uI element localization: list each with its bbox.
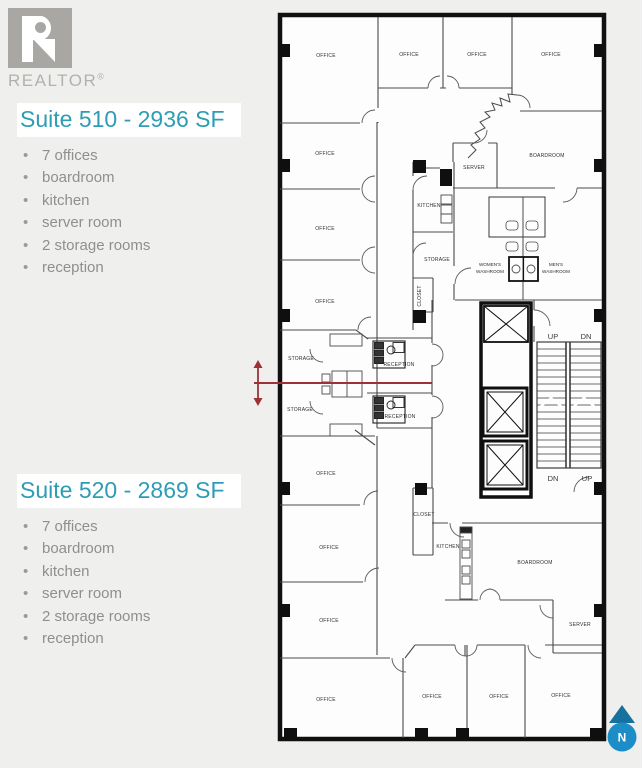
- room-label: SERVER: [463, 165, 485, 171]
- womens-washroom-label: WASHROOM: [476, 269, 504, 274]
- room-label: STORAGE: [287, 407, 313, 413]
- suite-520-panel: Suite 520 - 2869 SF 7 offices boardroom …: [17, 474, 257, 650]
- feature-item: 7 offices: [23, 516, 257, 538]
- info-sidebar: REALTOR® Suite 510 - 2936 SF 7 offices b…: [0, 0, 266, 768]
- realtor-logo: REALTOR®: [8, 8, 118, 91]
- feature-item: boardroom: [23, 167, 257, 189]
- room-label: CLOSET: [417, 285, 423, 306]
- room-label: OFFICE: [551, 693, 571, 699]
- north-triangle-icon: [609, 705, 635, 723]
- room-label: OFFICE: [422, 694, 442, 700]
- room-label: OFFICE: [489, 694, 509, 700]
- room-label: OFFICE: [319, 618, 339, 624]
- feature-item: kitchen: [23, 561, 257, 583]
- feature-item: boardroom: [23, 538, 257, 560]
- stair-label-up: UP: [548, 332, 558, 341]
- room-label: OFFICE: [315, 226, 335, 232]
- suite-510-title: Suite 510 - 2936 SF: [17, 103, 241, 137]
- mens-washroom-label: MEN'S: [549, 262, 563, 267]
- realtor-r-icon: [8, 8, 72, 68]
- room-label: STORAGE: [288, 356, 314, 362]
- suite-520-title: Suite 520 - 2869 SF: [17, 474, 241, 508]
- room-label: OFFICE: [316, 471, 336, 477]
- registered-mark: ®: [97, 71, 104, 81]
- feature-item: kitchen: [23, 190, 257, 212]
- stair-label-up: UP: [582, 474, 592, 483]
- stair-label-dn: DN: [548, 474, 559, 483]
- north-indicator: N: [608, 705, 637, 752]
- room-label: SERVER: [569, 622, 591, 628]
- room-label: OFFICE: [399, 52, 419, 58]
- room-label: KITCHEN: [417, 203, 441, 209]
- room-label: OFFICE: [316, 697, 336, 703]
- feature-item: 7 offices: [23, 145, 257, 167]
- feature-item: server room: [23, 583, 257, 605]
- room-label: OFFICE: [315, 299, 335, 305]
- room-label: RECEPTION: [384, 362, 415, 368]
- realtor-wordmark: REALTOR®: [8, 71, 118, 91]
- suite-510-features: 7 offices boardroom kitchen server room …: [17, 145, 257, 279]
- wordmark-text: REALTOR: [8, 71, 97, 90]
- suite-510-panel: Suite 510 - 2936 SF 7 offices boardroom …: [17, 103, 257, 279]
- room-label: OFFICE: [541, 52, 561, 58]
- feature-item: 2 storage rooms: [23, 235, 257, 257]
- room-label: OFFICE: [315, 151, 335, 157]
- feature-item: reception: [23, 257, 257, 279]
- room-label: RECEPTION: [385, 414, 416, 420]
- room-label: OFFICE: [319, 545, 339, 551]
- room-label: OFFICE: [316, 53, 336, 59]
- suite-520-features: 7 offices boardroom kitchen server room …: [17, 516, 257, 650]
- room-label: BOARDROOM: [517, 560, 552, 566]
- room-label: CLOSET: [413, 512, 434, 518]
- stair-label-dn: DN: [581, 332, 592, 341]
- feature-item: server room: [23, 212, 257, 234]
- feature-item: reception: [23, 628, 257, 650]
- room-label: KITCHEN: [436, 544, 460, 550]
- room-label: OFFICE: [467, 52, 487, 58]
- mens-washroom-label: WASHROOM: [542, 269, 570, 274]
- north-label: N: [618, 731, 627, 745]
- feature-item: 2 storage rooms: [23, 606, 257, 628]
- room-label: STORAGE: [424, 257, 450, 263]
- room-label: BOARDROOM: [529, 153, 564, 159]
- womens-washroom-label: WOMEN'S: [479, 262, 501, 267]
